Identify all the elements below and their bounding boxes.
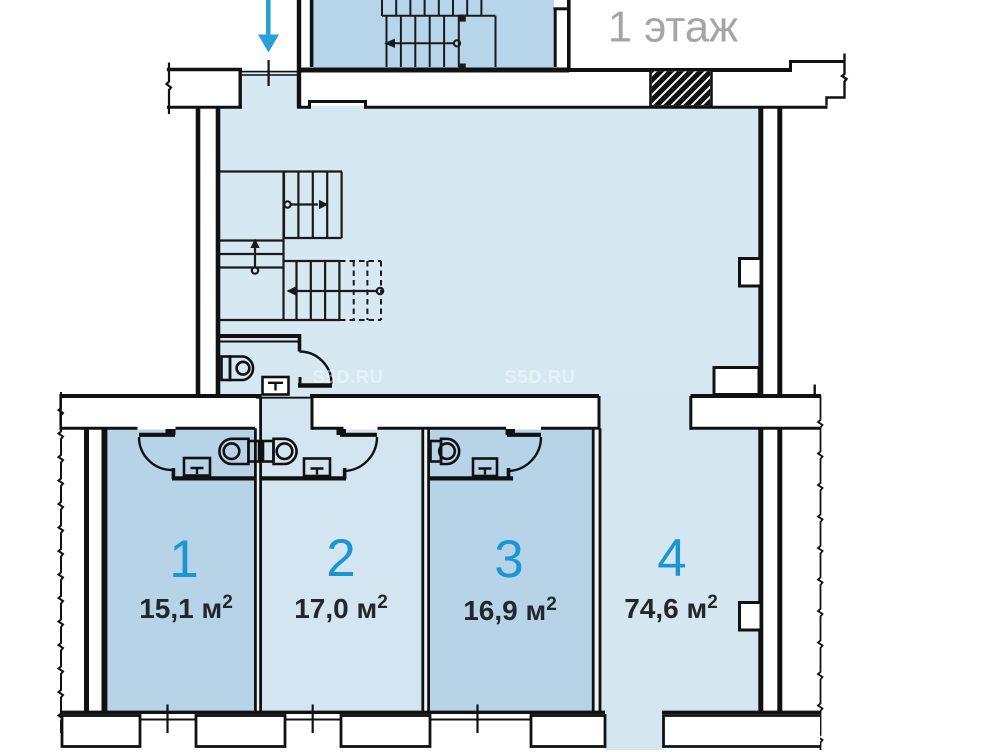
svg-text:17,0 м2: 17,0 м2 bbox=[294, 592, 388, 624]
svg-text:S5D.RU: S5D.RU bbox=[313, 366, 384, 387]
svg-text:1 этаж: 1 этаж bbox=[608, 4, 738, 52]
svg-text:15,1 м2: 15,1 м2 bbox=[139, 592, 233, 624]
svg-text:1: 1 bbox=[169, 530, 198, 589]
svg-text:4: 4 bbox=[657, 529, 686, 588]
svg-text:3: 3 bbox=[494, 530, 523, 589]
svg-text:16,9 м2: 16,9 м2 bbox=[463, 594, 557, 626]
svg-text:74,6 м2: 74,6 м2 bbox=[624, 592, 718, 624]
svg-text:2: 2 bbox=[326, 529, 355, 588]
svg-text:S5D.RU: S5D.RU bbox=[505, 366, 576, 387]
